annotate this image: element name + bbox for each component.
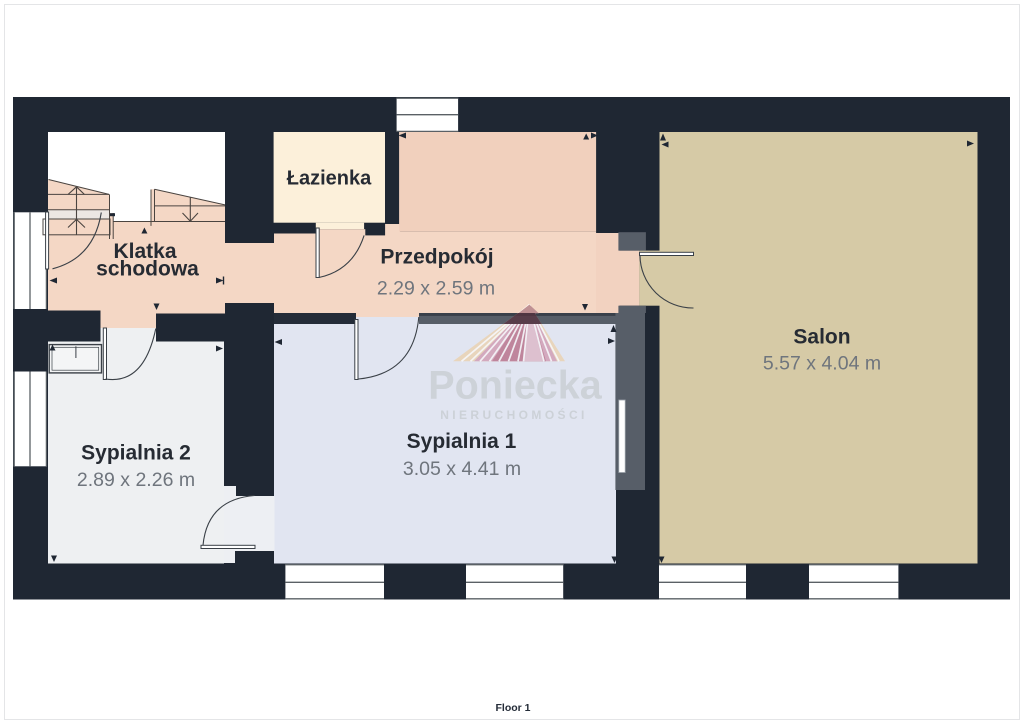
svg-text:Sypialnia 2: Sypialnia 2 bbox=[81, 442, 191, 465]
svg-text:NIERUCHOMOŚCI: NIERUCHOMOŚCI bbox=[440, 407, 588, 422]
svg-text:Salon: Salon bbox=[793, 326, 850, 349]
svg-text:Sypialnia 1: Sypialnia 1 bbox=[407, 430, 517, 453]
svg-text:3.05 x 4.41 m: 3.05 x 4.41 m bbox=[403, 458, 521, 480]
svg-text:2.29 x 2.59 m: 2.29 x 2.59 m bbox=[377, 278, 495, 300]
svg-text:Łazienka: Łazienka bbox=[287, 168, 372, 190]
svg-text:2.89 x 2.26 m: 2.89 x 2.26 m bbox=[77, 469, 195, 491]
svg-text:5.57 x 4.04 m: 5.57 x 4.04 m bbox=[763, 353, 881, 375]
svg-text:Floor 1: Floor 1 bbox=[495, 702, 530, 714]
svg-text:Poniecka: Poniecka bbox=[428, 364, 602, 408]
svg-text:schodowa: schodowa bbox=[96, 258, 199, 281]
svg-text:Przedpokój: Przedpokój bbox=[380, 246, 493, 269]
